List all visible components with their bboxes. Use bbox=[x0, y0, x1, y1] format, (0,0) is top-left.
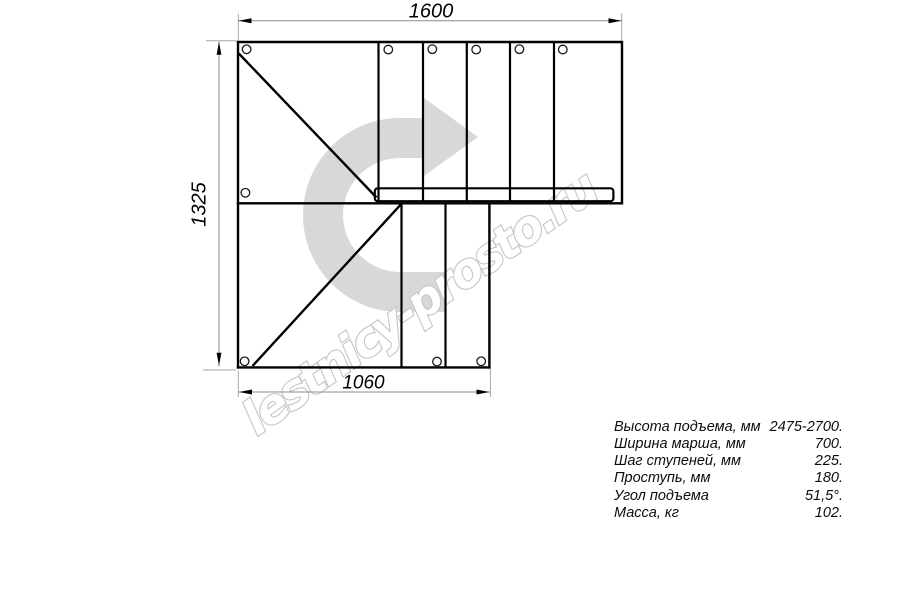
spec-value: 180. bbox=[815, 470, 843, 487]
spec-row-rise-height: Высота подъема, мм 2475-2700. bbox=[614, 419, 843, 436]
spec-value: 102. bbox=[815, 505, 843, 522]
extension-lines bbox=[203, 13, 622, 397]
mounting-holes bbox=[240, 45, 567, 366]
spec-label: Масса, кг bbox=[614, 505, 679, 522]
upper-flight-treads bbox=[379, 43, 555, 202]
stringer-diagonals bbox=[239, 54, 401, 367]
spec-row-flight-width: Ширина марша, мм 700. bbox=[614, 436, 843, 453]
spec-label: Проступь, мм bbox=[614, 470, 710, 487]
spec-label: Ширина марша, мм bbox=[614, 436, 746, 453]
dimension-bottom-value: 1060 bbox=[342, 373, 385, 394]
spec-label: Угол подъема bbox=[614, 488, 709, 505]
dimension-left-value: 1325 bbox=[189, 181, 211, 226]
spec-row-step-pitch: Шаг ступеней, мм 225. bbox=[614, 453, 843, 470]
spec-label: Высота подъема, мм bbox=[614, 419, 761, 436]
spec-value: 51,5°. bbox=[805, 488, 843, 505]
landing-edge-strip bbox=[375, 188, 614, 201]
spec-label: Шаг ступеней, мм bbox=[614, 453, 741, 470]
dimension-top-value: 1600 bbox=[409, 1, 454, 23]
spec-table: Высота подъема, мм 2475-2700. Ширина мар… bbox=[614, 419, 843, 522]
spec-row-rise-angle: Угол подъема 51,5°. bbox=[614, 488, 843, 505]
spec-value: 2475-2700. bbox=[770, 419, 843, 436]
spec-row-tread: Проступь, мм 180. bbox=[614, 470, 843, 487]
spec-value: 225. bbox=[815, 453, 843, 470]
spec-row-mass: Масса, кг 102. bbox=[614, 505, 843, 522]
lower-flight-treads bbox=[402, 204, 446, 367]
spec-value: 700. bbox=[815, 436, 843, 453]
